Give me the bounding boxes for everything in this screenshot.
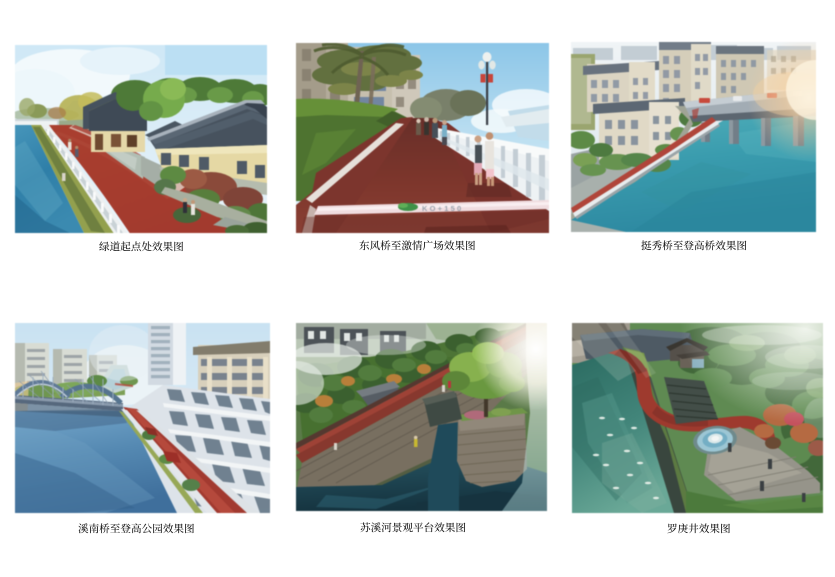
svg-text:KO+150: KO+150 (422, 204, 463, 213)
